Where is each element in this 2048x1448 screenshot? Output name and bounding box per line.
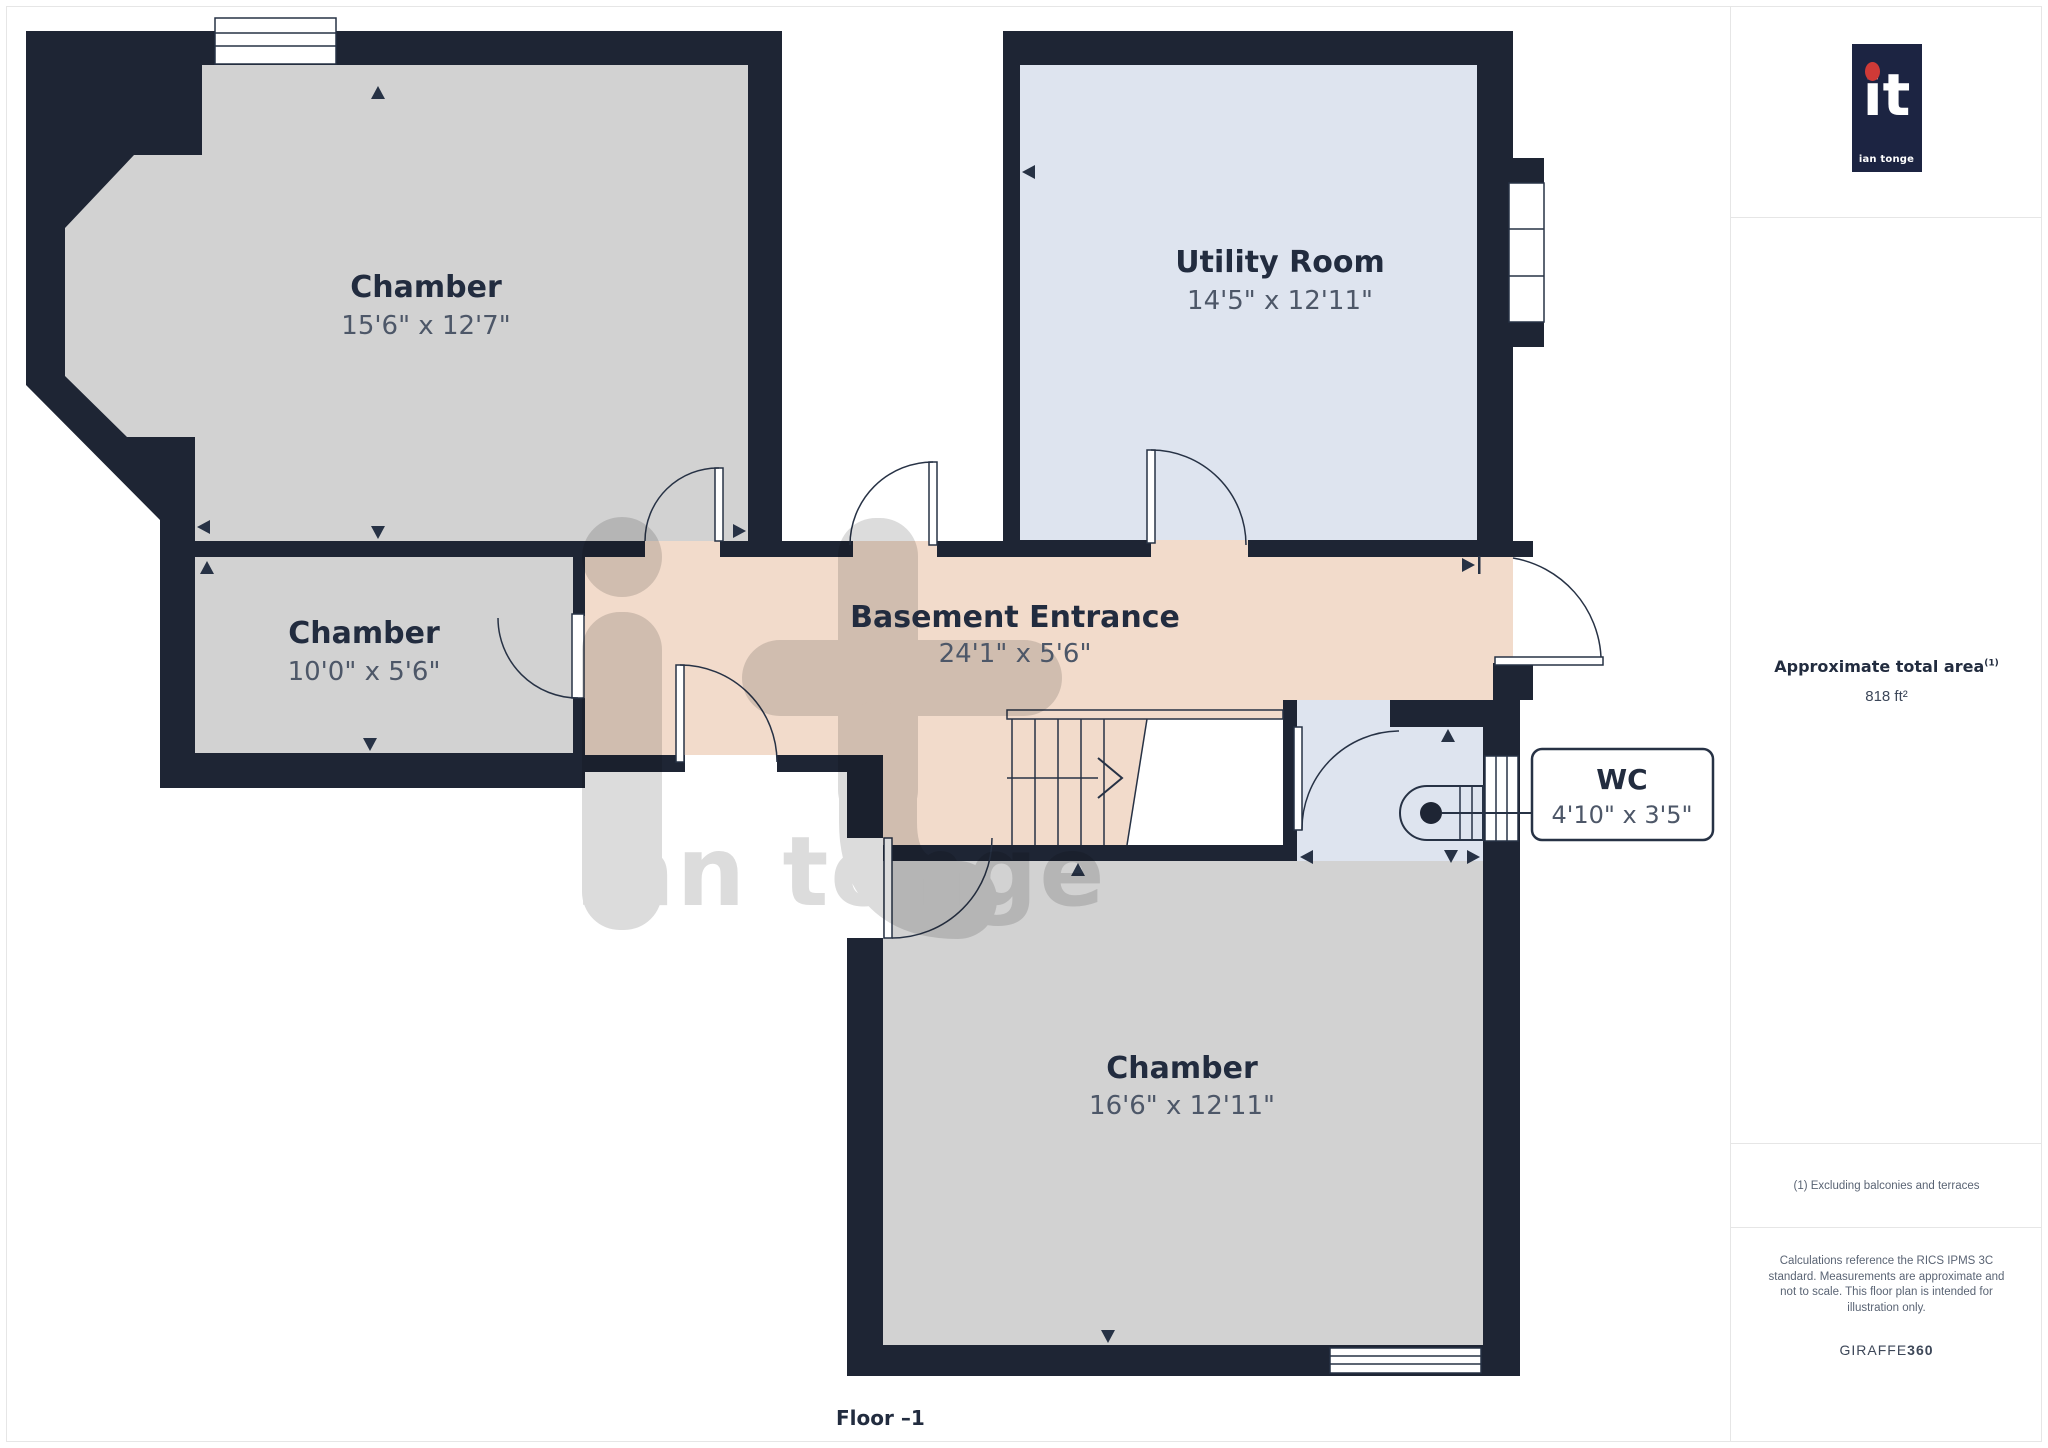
disclaimer-section: Calculations reference the RICS IPMS 3C … bbox=[1731, 1228, 2042, 1442]
window bbox=[1485, 756, 1518, 841]
logo-red-dot-icon bbox=[1865, 62, 1880, 81]
floor-plan-canvas: ian tonge Chamber 15'6" x 12'7" Chamber … bbox=[0, 0, 1730, 1448]
stair-void bbox=[1127, 719, 1283, 845]
room-chamber-small bbox=[195, 557, 573, 753]
total-area-value: 818 ft² bbox=[1865, 688, 1908, 705]
room-label: Chamber bbox=[1106, 1051, 1258, 1086]
brand-suffix: 360 bbox=[1907, 1342, 1933, 1358]
room-label: Basement Entrance bbox=[850, 600, 1180, 635]
agency-logo: it ian tonge bbox=[1852, 44, 1922, 172]
watermark-name: ian tonge bbox=[575, 816, 1106, 928]
stair-handrail bbox=[1007, 710, 1283, 719]
footnote-text: (1) Excluding balconies and terraces bbox=[1793, 1180, 1979, 1192]
room-dimensions: 4'10" x 3'5" bbox=[1551, 801, 1692, 829]
info-sidebar: it ian tonge Approximate total area(1) 8… bbox=[1730, 6, 2042, 1442]
agency-logo-name: ian tonge bbox=[1852, 154, 1922, 165]
floorplan-page: { "plan": { "rooms": [ {"name": "Chamber… bbox=[0, 0, 2048, 1448]
room-dimensions: 14'5" x 12'11" bbox=[1187, 286, 1373, 316]
total-area-title-text: Approximate total area bbox=[1774, 657, 1984, 676]
agency-logo-mark: it bbox=[1852, 66, 1922, 124]
room-dimensions: 10'0" x 5'6" bbox=[288, 657, 441, 687]
window bbox=[215, 18, 336, 64]
window bbox=[1509, 183, 1544, 322]
total-area-superscript: (1) bbox=[1984, 658, 1999, 668]
brand-name: GIRAFFE bbox=[1839, 1342, 1907, 1358]
room-dimensions: 15'6" x 12'7" bbox=[341, 311, 510, 341]
logo-section: it ian tonge bbox=[1731, 6, 2042, 218]
giraffe360-brand: GIRAFFE360 bbox=[1731, 1342, 2042, 1358]
room-label: WC bbox=[1596, 763, 1647, 796]
window bbox=[1330, 1348, 1481, 1373]
disclaimer-text: Calculations reference the RICS IPMS 3C … bbox=[1768, 1254, 2006, 1316]
footnote-section: (1) Excluding balconies and terraces bbox=[1731, 1144, 2042, 1228]
total-area-section: Approximate total area(1) 818 ft² bbox=[1731, 218, 2042, 1144]
room-dimensions: 16'6" x 12'11" bbox=[1089, 1091, 1275, 1121]
room-dimensions: 24'1" x 5'6" bbox=[939, 639, 1092, 669]
room-label: Chamber bbox=[288, 616, 440, 651]
floor-label: Floor –1 bbox=[836, 1406, 925, 1430]
total-area-title: Approximate total area(1) bbox=[1774, 657, 1999, 676]
room-label: Chamber bbox=[350, 270, 502, 305]
room-label: Utility Room bbox=[1175, 245, 1384, 280]
